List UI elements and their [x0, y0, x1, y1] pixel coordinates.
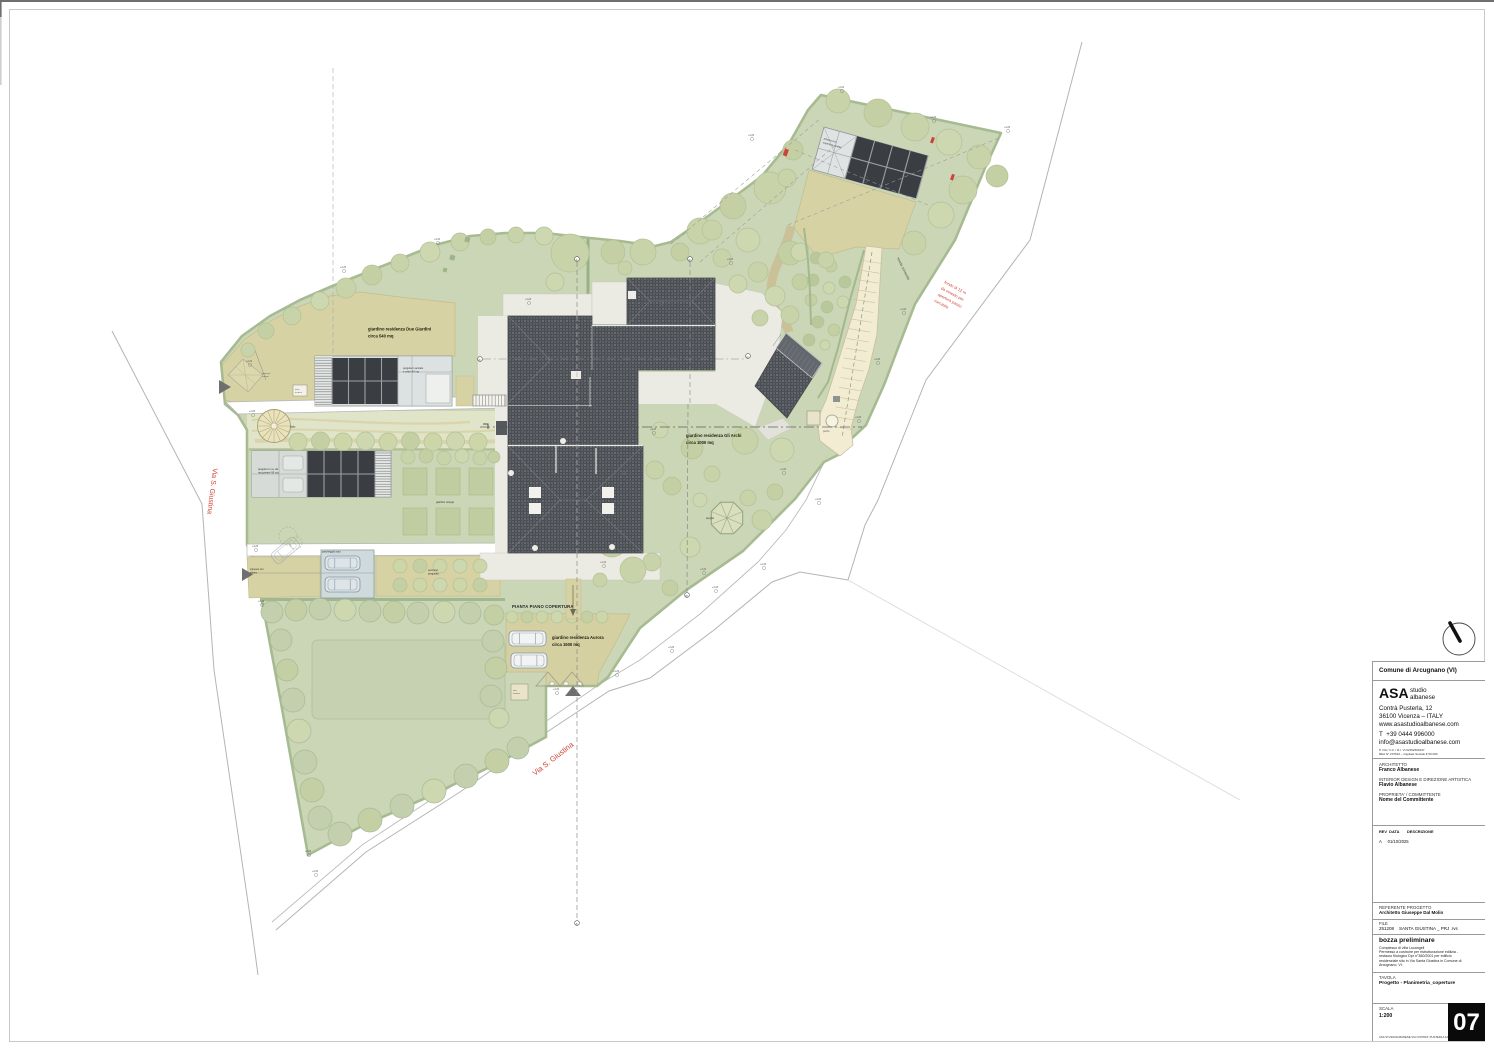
svg-text:A: A — [576, 922, 578, 926]
svg-text:+4.20: +4.20 — [874, 358, 881, 361]
svg-text:+4.20: +4.20 — [258, 600, 265, 603]
svg-text:+4.20: +4.20 — [553, 688, 560, 691]
svg-text:giardino residenza Gli Archi: giardino residenza Gli Archi — [686, 433, 741, 438]
svg-text:+4.20: +4.20 — [650, 428, 657, 431]
svg-text:+4.20: +4.20 — [900, 308, 907, 311]
svg-text:+4.20: +4.20 — [838, 86, 845, 89]
svg-text:tecnico: tecnico — [513, 692, 521, 695]
svg-text:+4.20: +4.20 — [658, 298, 665, 301]
svg-text:A: A — [576, 258, 578, 262]
svg-text:pergolato: pergolato — [428, 572, 439, 576]
svg-text:carraio: carraio — [262, 375, 269, 378]
svg-text:+4.20: +4.20 — [249, 410, 256, 413]
svg-text:D: D — [686, 594, 688, 598]
svg-text:PIANTA PIANO COPERTURA: PIANTA PIANO COPERTURA — [512, 604, 574, 609]
svg-text:C: C — [747, 355, 749, 359]
svg-text:+4.20: +4.20 — [340, 266, 347, 269]
svg-text:+4.20: +4.20 — [700, 568, 707, 571]
svg-text:+4.20: +4.20 — [862, 176, 869, 179]
svg-text:pergola in c.a. da: pergola in c.a. da — [258, 467, 278, 471]
svg-text:+4.20: +4.20 — [727, 258, 734, 261]
svg-text:tecnica: tecnica — [295, 391, 303, 394]
svg-text:e vetro 40 mq: e vetro 40 mq — [403, 370, 419, 374]
svg-text:giardino residenza Aurora: giardino residenza Aurora — [552, 635, 604, 640]
svg-text:+4.20: +4.20 — [760, 563, 767, 566]
svg-text:+4.20: +4.20 — [305, 850, 312, 853]
svg-text:+4.20: +4.20 — [620, 468, 627, 471]
svg-text:area: area — [295, 388, 300, 391]
svg-text:+4.20: +4.20 — [312, 870, 319, 873]
svg-text:percorso: percorso — [428, 568, 439, 572]
svg-text:parcheggio auto: parcheggio auto — [322, 550, 341, 554]
svg-text:circa 540 mq: circa 540 mq — [368, 333, 394, 338]
svg-text:ingresso: ingresso — [262, 372, 271, 375]
svg-text:+4.20: +4.20 — [815, 498, 822, 501]
svg-text:+4.20: +4.20 — [712, 586, 719, 589]
svg-text:giardino residenza Due Giardin: giardino residenza Due Giardini — [368, 327, 431, 332]
svg-text:+4.20: +4.20 — [748, 134, 755, 137]
svg-text:+4.20: +4.20 — [600, 561, 607, 564]
svg-text:+4.20: +4.20 — [246, 360, 253, 363]
svg-text:sbarra: sbarra — [250, 572, 257, 575]
svg-text:+4.20: +4.20 — [525, 298, 532, 301]
svg-text:+4.20: +4.20 — [613, 670, 620, 673]
svg-text:circa 1500 mq: circa 1500 mq — [552, 642, 580, 647]
svg-text:recuperare 90 mq: recuperare 90 mq — [258, 471, 279, 475]
svg-text:+4.20: +4.20 — [855, 416, 862, 419]
svg-text:+4.20: +4.20 — [252, 545, 259, 548]
svg-text:+4.20: +4.20 — [930, 116, 937, 119]
svg-text:+4.20: +4.20 — [1004, 126, 1011, 129]
svg-text:+4.20: +4.20 — [780, 468, 787, 471]
svg-text:+4.20: +4.20 — [434, 238, 441, 241]
svg-text:+4.20: +4.20 — [668, 646, 675, 649]
svg-text:C: C — [479, 358, 481, 362]
svg-text:circa 1000 mq: circa 1000 mq — [686, 440, 714, 445]
svg-text:pozzo: pozzo — [823, 430, 830, 433]
svg-text:pergola: pergola — [706, 517, 715, 520]
svg-text:giardino orange: giardino orange — [436, 500, 455, 504]
svg-text:tiglio: tiglio — [290, 425, 296, 429]
svg-text:pergola in acciaio: pergola in acciaio — [403, 366, 424, 370]
svg-text:D: D — [689, 258, 691, 262]
